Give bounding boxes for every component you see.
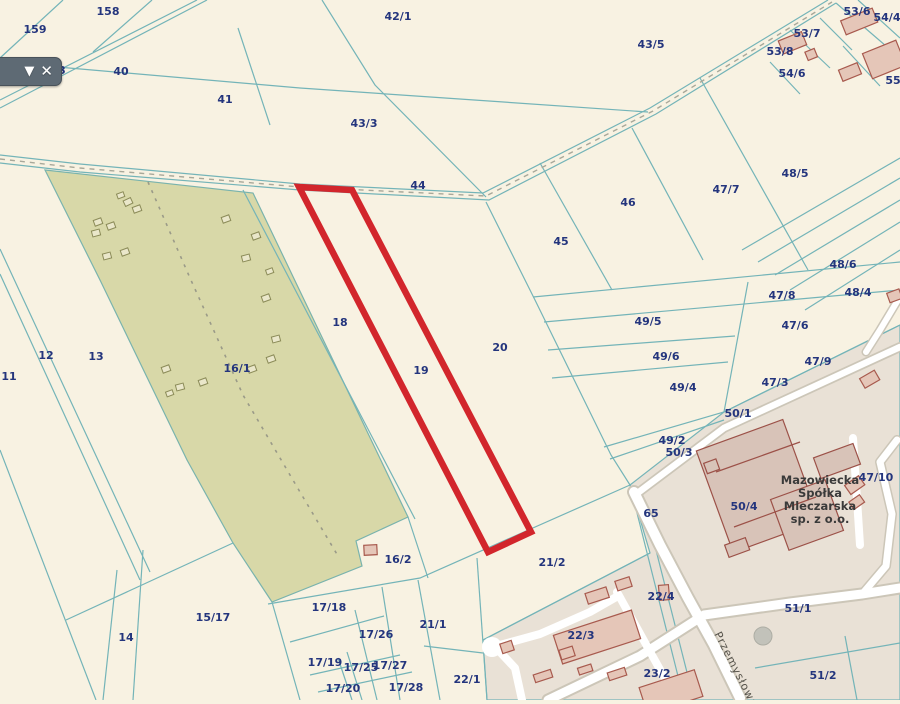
map-canvas[interactable]: 159158404142/143/543/344454653/654/453/7… bbox=[0, 0, 900, 700]
company-label-line: sp. z o.o. bbox=[791, 512, 850, 526]
parcel-label: 54/6 bbox=[779, 67, 806, 80]
chevron-down-icon[interactable]: ▼ bbox=[24, 65, 34, 78]
parcel-label: 18 bbox=[332, 316, 347, 329]
parcel-label: 12 bbox=[38, 349, 53, 362]
parcel-label: 43/3 bbox=[351, 117, 378, 130]
parcel-label: 47/6 bbox=[782, 319, 809, 332]
parcel-label: 17/19 bbox=[308, 656, 343, 669]
parcel-label: 14 bbox=[118, 631, 134, 644]
parcel-label: 21/1 bbox=[420, 618, 447, 631]
parcel-label: 50/3 bbox=[666, 446, 693, 459]
tree-circle bbox=[754, 627, 772, 645]
parcel-label: 45 bbox=[553, 235, 568, 248]
parcel-label: 48/6 bbox=[830, 258, 857, 271]
company-name-label: MazowieckaSpółkaMleczarskasp. z o.o. bbox=[781, 473, 859, 526]
parcel-label: 41 bbox=[217, 93, 232, 106]
parcel-label: 49/5 bbox=[635, 315, 662, 328]
parcel-label: 53/6 bbox=[844, 5, 871, 18]
parcel-label: 48/5 bbox=[782, 167, 809, 180]
parcel-label: 47/9 bbox=[805, 355, 832, 368]
map-svg[interactable]: 159158404142/143/543/344454653/654/453/7… bbox=[0, 0, 900, 700]
parcel-label: 19 bbox=[413, 364, 428, 377]
map-toolbar: ▼ ✕ bbox=[0, 57, 62, 86]
parcel-label: 40 bbox=[113, 65, 129, 78]
parcel-label: 55 bbox=[885, 74, 900, 87]
parcel-label: 47/10 bbox=[859, 471, 894, 484]
parcel-label: 47/7 bbox=[713, 183, 740, 196]
parcel-label: 53/7 bbox=[794, 27, 821, 40]
parcel-label: 17/26 bbox=[359, 628, 394, 641]
parcel-label: 48/4 bbox=[845, 286, 872, 299]
parcel-label: 50/4 bbox=[731, 500, 758, 513]
parcel-label: 17/27 bbox=[373, 659, 408, 672]
parcel-label: 16/1 bbox=[224, 362, 251, 375]
parcel-label: 23/2 bbox=[644, 667, 671, 680]
parcel-label: 42/1 bbox=[385, 10, 412, 23]
parcel-label: 51/1 bbox=[785, 602, 812, 615]
parcel-label: 15/17 bbox=[196, 611, 231, 624]
parcel-label: 16/2 bbox=[385, 553, 412, 566]
parcel-label: 50/1 bbox=[725, 407, 752, 420]
parcel-label: 47/8 bbox=[769, 289, 796, 302]
parcel-label: 158 bbox=[97, 5, 120, 18]
company-label-line: Mazowiecka bbox=[781, 473, 859, 487]
parcel-label: 44 bbox=[410, 179, 426, 192]
parcel-label: 11 bbox=[1, 370, 16, 383]
close-icon[interactable]: ✕ bbox=[40, 64, 53, 79]
parcel-label: 20 bbox=[492, 341, 508, 354]
parcel-label: 47/3 bbox=[762, 376, 789, 389]
parcel-label: 49/6 bbox=[653, 350, 680, 363]
parcel-label: 17/18 bbox=[312, 601, 347, 614]
parcel-label: 13 bbox=[88, 350, 103, 363]
parcel-label: 22/3 bbox=[568, 629, 595, 642]
parcel-label: 17/28 bbox=[389, 681, 424, 694]
parcel-label: 159 bbox=[24, 23, 47, 36]
parcel-label: 51/2 bbox=[810, 669, 837, 682]
parcel-label: 17/20 bbox=[326, 682, 361, 695]
parcel-label: 46 bbox=[620, 196, 636, 209]
parcel-label: 21/2 bbox=[539, 556, 566, 569]
parcel-label: 49/4 bbox=[670, 381, 697, 394]
parcel-label: 53/8 bbox=[767, 45, 794, 58]
parcel-label: 43/5 bbox=[638, 38, 665, 51]
company-label-line: Spółka bbox=[798, 486, 842, 500]
company-label-line: Mleczarska bbox=[784, 499, 856, 513]
parcel-label: 22/1 bbox=[454, 673, 481, 686]
parcel-label: 54/4 bbox=[874, 11, 900, 24]
parcel-label: 65 bbox=[643, 507, 658, 520]
parcel-label: 22/4 bbox=[648, 590, 675, 603]
